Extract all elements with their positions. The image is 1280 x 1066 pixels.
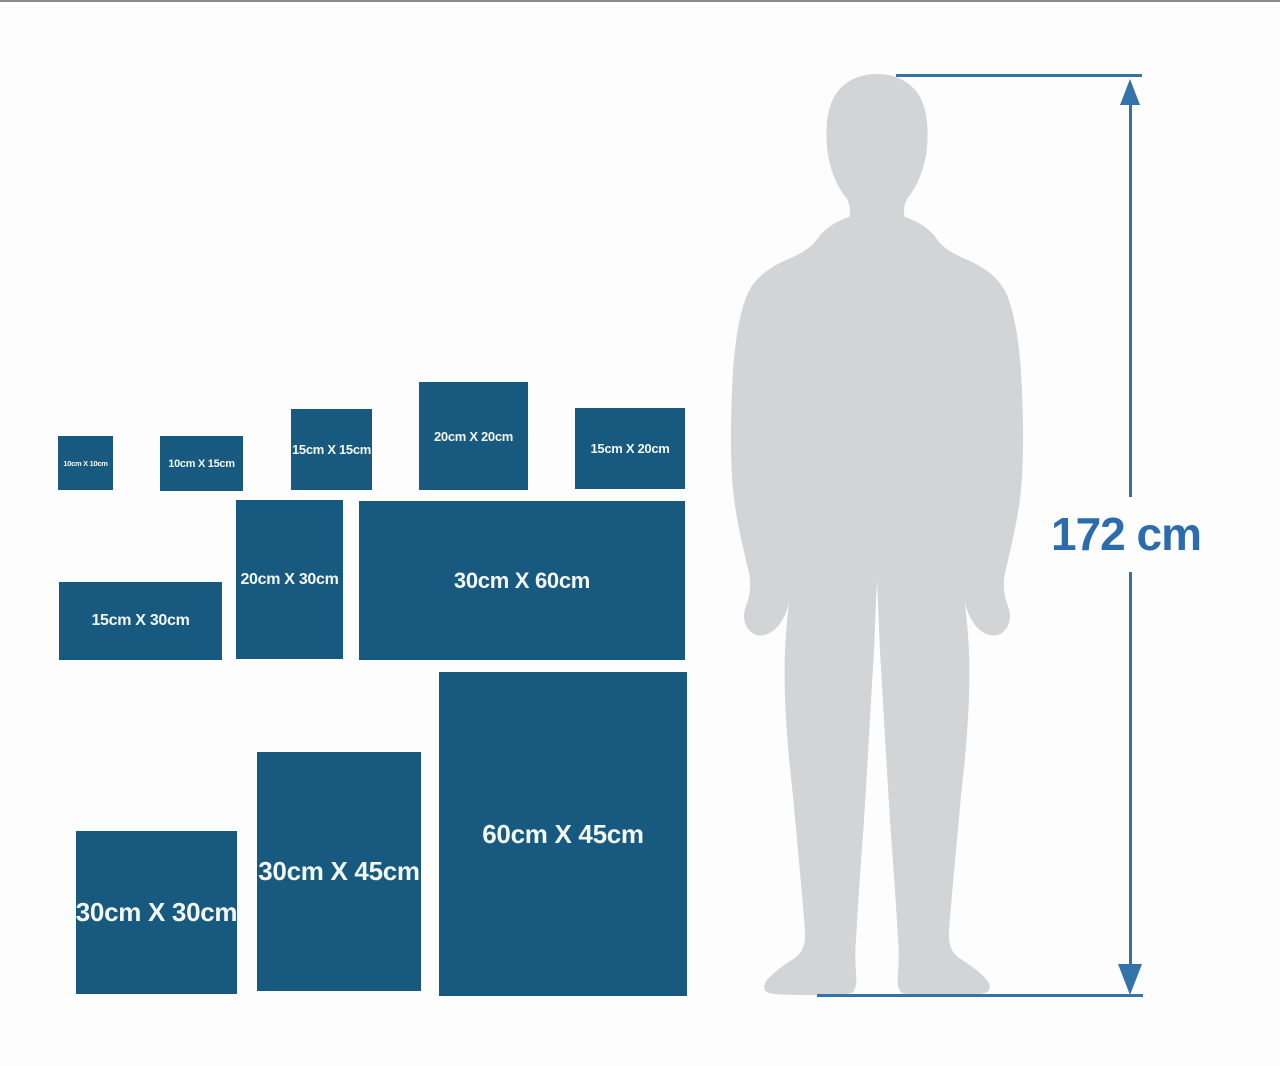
arrow-down-icon bbox=[1118, 964, 1142, 995]
size-box-10x15: 10cm X 15cm bbox=[160, 436, 243, 491]
size-box-label: 60cm X 45cm bbox=[482, 819, 644, 850]
height-dimension-bottom-cap-line bbox=[817, 994, 1143, 997]
size-box-30x45: 30cm X 45cm bbox=[257, 752, 421, 991]
size-box-label: 20cm X 30cm bbox=[240, 571, 338, 589]
size-box-label: 30cm X 30cm bbox=[76, 897, 238, 928]
person-height-label: 172 cm bbox=[1026, 507, 1226, 561]
size-box-label: 15cm X 30cm bbox=[91, 612, 189, 630]
size-box-20x30: 20cm X 30cm bbox=[236, 500, 343, 659]
size-box-label: 10cm X 10cm bbox=[63, 459, 107, 468]
size-box-label: 10cm X 15cm bbox=[168, 458, 234, 470]
size-box-label: 30cm X 60cm bbox=[454, 568, 590, 594]
size-box-15x20: 15cm X 20cm bbox=[575, 408, 685, 489]
size-box-label: 15cm X 15cm bbox=[292, 442, 371, 457]
size-box-30x30: 30cm X 30cm bbox=[76, 831, 237, 994]
height-dimension-top-cap-line bbox=[896, 74, 1142, 77]
height-dimension-vertical-line-upper bbox=[1129, 101, 1132, 497]
size-box-20x20: 20cm X 20cm bbox=[419, 382, 528, 490]
size-box-60x45: 60cm X 45cm bbox=[439, 672, 687, 996]
arrow-up-icon bbox=[1120, 79, 1140, 105]
size-box-15x30: 15cm X 30cm bbox=[59, 582, 222, 660]
size-box-15x15: 15cm X 15cm bbox=[291, 409, 372, 490]
size-box-label: 15cm X 20cm bbox=[590, 441, 669, 456]
size-box-label: 30cm X 45cm bbox=[258, 856, 420, 887]
height-dimension-vertical-line-lower bbox=[1129, 572, 1132, 965]
size-box-label: 20cm X 20cm bbox=[434, 429, 513, 444]
size-box-10x10: 10cm X 10cm bbox=[58, 436, 113, 490]
size-comparison-canvas: 10cm X 10cm 10cm X 15cm 15cm X 15cm 20cm… bbox=[0, 0, 1280, 1066]
person-silhouette bbox=[720, 72, 1032, 997]
size-box-30x60: 30cm X 60cm bbox=[359, 501, 685, 660]
